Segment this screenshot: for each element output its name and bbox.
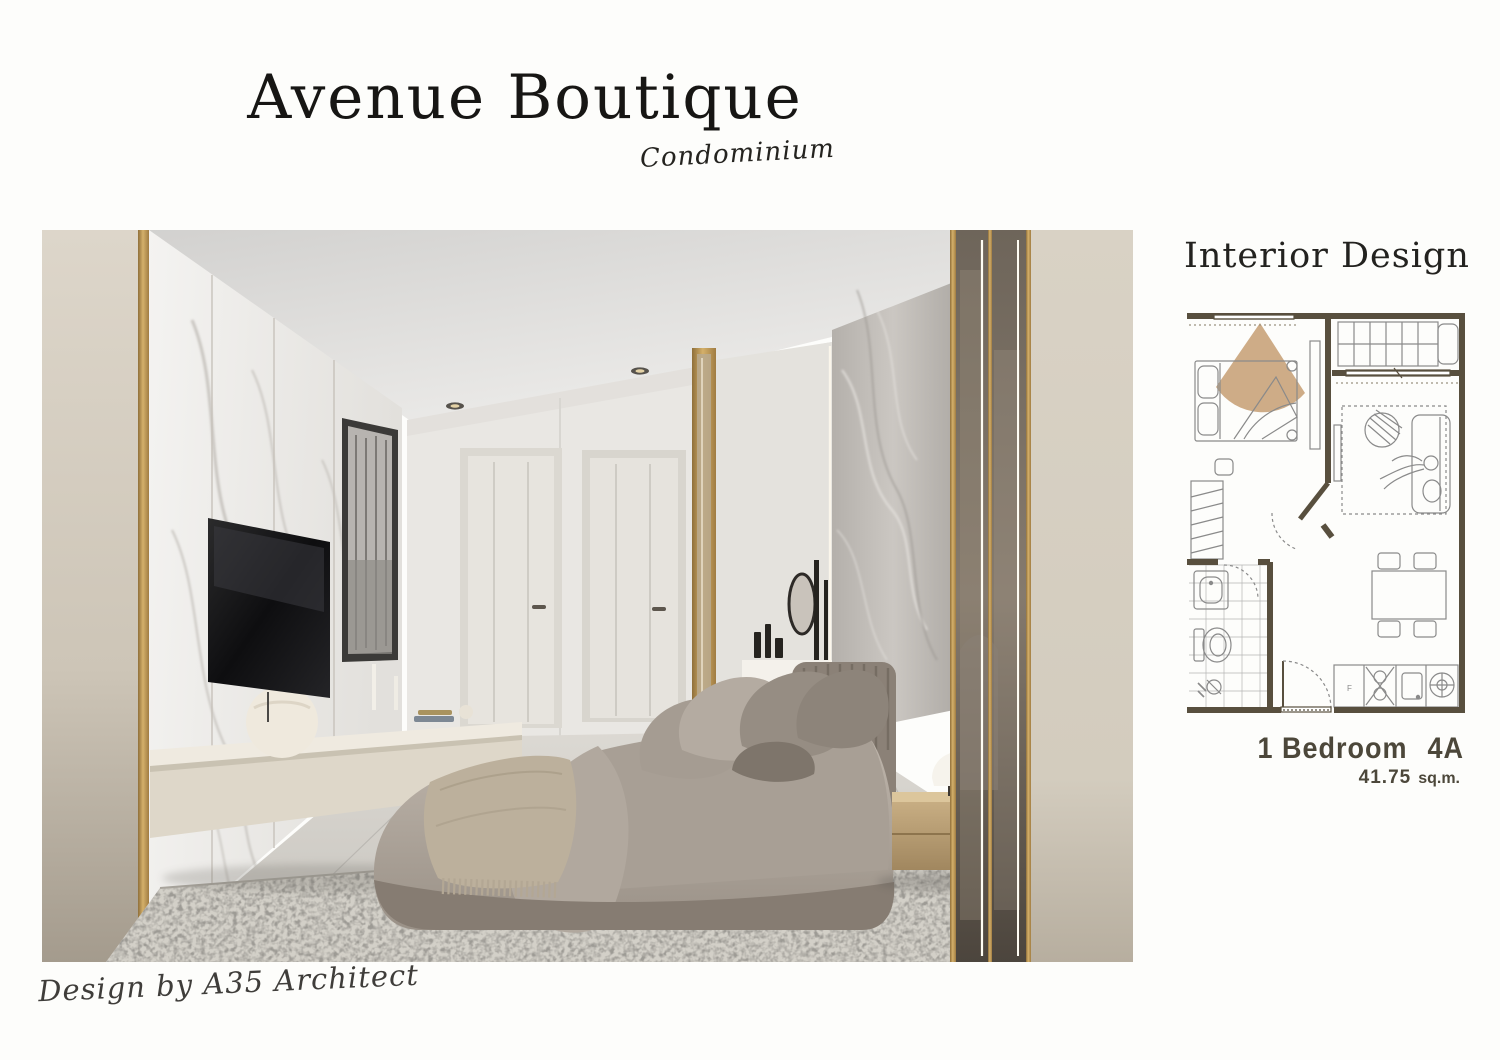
brand-subtitle: Condominium [639, 134, 830, 174]
bedroom-door-arc [1272, 513, 1296, 549]
left-wall [42, 230, 138, 962]
door-handle-icon [532, 605, 546, 609]
cooktop-fan [1430, 673, 1454, 697]
throw-blanket [424, 756, 576, 890]
door [582, 450, 686, 722]
door-handle-icon [652, 607, 666, 611]
spotlight-icon [631, 367, 649, 374]
unit-code-label: 4A [1427, 732, 1464, 764]
unit-area-unit: sq.m. [1418, 770, 1460, 787]
kitchen-counter: F [1334, 665, 1458, 707]
gold-mirror [692, 348, 716, 738]
bedroom-photo [42, 230, 1133, 962]
designer-credit: Design by A35 Architect [37, 958, 419, 1009]
balcony-sofa [1338, 322, 1458, 366]
stove [1366, 667, 1394, 705]
entry-door-arc [1283, 661, 1331, 709]
spotlight-icon [446, 402, 464, 409]
toilet [1194, 628, 1231, 662]
unit-info: 1 Bedroom4A 41.75sq.m. [1164, 732, 1464, 789]
bathroom-door-arc [1224, 565, 1258, 599]
unit-area: 41.75sq.m. [1164, 767, 1464, 789]
right-wall [1031, 230, 1133, 962]
coffee-table [1365, 410, 1402, 447]
kitchen-sink [1402, 673, 1422, 699]
bathroom-sink [1194, 571, 1228, 609]
stool [1215, 459, 1233, 475]
wardrobe [1191, 481, 1223, 559]
tv-panel [1310, 341, 1320, 449]
person [1380, 456, 1438, 489]
glass-partition [950, 230, 1032, 962]
unit-area-value: 41.75 [1359, 767, 1412, 788]
svg-text:F: F [1347, 684, 1352, 693]
living-tv [1334, 425, 1341, 481]
door [460, 448, 562, 728]
shower [1198, 680, 1221, 697]
round-mirror-icon [789, 574, 815, 634]
living-sofa [1412, 415, 1450, 513]
unit-type-label: 1 Bedroom [1257, 732, 1407, 764]
dining-table [1372, 553, 1446, 637]
gold-trim [138, 230, 149, 962]
unit-name: 1 Bedroom4A [1164, 732, 1464, 765]
wall-art [342, 418, 398, 662]
brand-title: Avenue Boutique [225, 62, 825, 133]
floor-plan: F [1184, 313, 1465, 713]
cushion [1423, 480, 1441, 502]
interior-design-heading: Interior Design [1184, 236, 1464, 276]
